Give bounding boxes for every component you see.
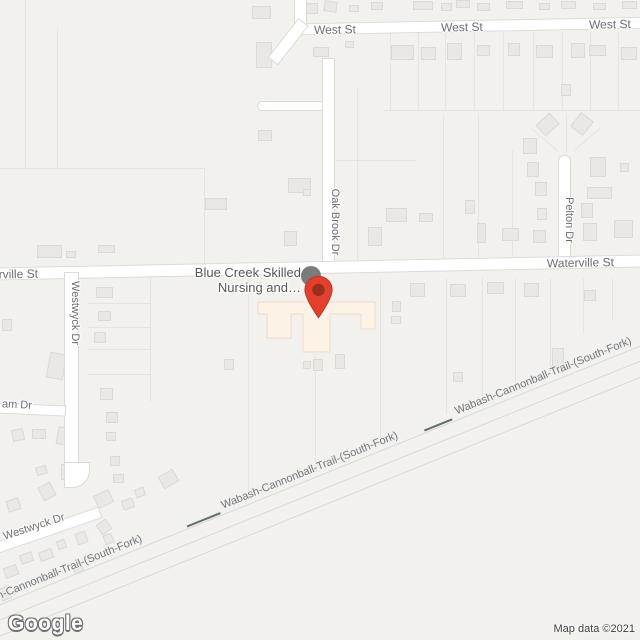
map-canvas[interactable]: West St West St West St Waterville St Wa…: [0, 0, 640, 640]
parcel-line: [390, 32, 391, 110]
road-west-st: West St West St West St: [294, 17, 640, 36]
parcel-line: [383, 110, 640, 111]
building: [447, 43, 462, 60]
parcel-line: [474, 32, 475, 110]
street-label-oak-brook-dr: Oak Brook Dr: [329, 170, 341, 274]
parcel-line: [482, 278, 483, 400]
building: [583, 223, 597, 241]
place-label[interactable]: Blue Creek Skilled Nursing and…: [150, 265, 301, 295]
building: [621, 47, 637, 60]
building: [224, 359, 234, 370]
building: [391, 316, 401, 324]
building: [2, 319, 12, 331]
parcel-line: [443, 115, 444, 258]
building: [614, 220, 633, 238]
building: [421, 47, 436, 60]
building: [450, 284, 466, 297]
building: [391, 45, 414, 60]
parcel-line: [612, 278, 613, 320]
building: [533, 230, 546, 243]
building: [589, 45, 606, 56]
building: [3, 564, 20, 579]
building: [413, 1, 433, 10]
building: [158, 469, 180, 490]
building: [508, 43, 520, 56]
pin-inner-dot: [312, 284, 324, 296]
google-logo[interactable]: Google: [8, 612, 83, 636]
building: [477, 45, 490, 56]
building: [98, 245, 115, 253]
building: [419, 213, 433, 222]
building: [37, 245, 62, 258]
building: [502, 228, 519, 241]
place-label-line2: Nursing and…: [150, 280, 301, 295]
building: [570, 112, 594, 136]
parcel-line: [550, 278, 551, 372]
parcel-line: [248, 278, 249, 500]
building: [536, 45, 553, 58]
street-label-pelton-dr: Pelton Dr: [563, 168, 575, 272]
street-label-waterville-st-left: Waterville St: [0, 268, 38, 281]
building: [98, 311, 111, 321]
parcel-line: [445, 32, 446, 110]
parcel-line: [418, 32, 419, 110]
parcel-line: [25, 0, 26, 168]
building: [537, 208, 547, 220]
building: [11, 428, 25, 442]
building: [93, 489, 114, 509]
trail-line-segment: [187, 512, 221, 527]
building: [106, 412, 118, 423]
parcel-line: [503, 32, 504, 110]
street-label-am-dr: am Dr: [2, 398, 33, 412]
building: [535, 113, 559, 137]
building: [121, 497, 136, 511]
building: [313, 359, 323, 371]
parcel-line: [583, 278, 584, 332]
building: [386, 208, 407, 222]
parcel-line: [590, 32, 591, 110]
road-westwyck-dr-curve: [64, 462, 90, 488]
building: [96, 287, 113, 298]
street-label-westwyck-dr-vertical: Westwyck Dr: [69, 261, 81, 365]
building: [506, 1, 523, 9]
parcel-line: [336, 160, 416, 161]
building: [539, 3, 550, 10]
building: [477, 3, 490, 11]
building: [581, 203, 593, 218]
building: [584, 290, 596, 301]
parcel-line: [57, 28, 58, 168]
building: [571, 43, 585, 58]
parcel-line: [566, 115, 567, 153]
parcel-line: [446, 278, 447, 414]
building: [465, 200, 475, 214]
road-oak-brook-dr-diagonal: [268, 18, 309, 65]
building: [313, 47, 329, 57]
building: [368, 227, 382, 246]
building: [205, 198, 227, 210]
trail-line-segment: [424, 418, 453, 431]
map-pin-icon[interactable]: [303, 275, 334, 319]
place-label-line1: Blue Creek Skilled: [150, 265, 301, 280]
building: [35, 465, 48, 477]
building: [100, 388, 113, 400]
map-attribution: Map data ©2021: [554, 623, 636, 635]
building: [453, 372, 463, 382]
street-label-west-st-3: West St: [589, 18, 631, 31]
building: [56, 539, 68, 551]
building: [303, 189, 311, 196]
street-label-west-st-1: West St: [314, 23, 356, 36]
building: [523, 138, 537, 154]
building: [561, 84, 571, 96]
building: [106, 432, 116, 441]
parcel-line: [533, 32, 534, 110]
building: [477, 223, 486, 243]
parcel-line: [512, 150, 513, 258]
building: [590, 157, 606, 177]
parcel-line: [618, 32, 619, 110]
building: [456, 0, 470, 8]
building: [32, 429, 46, 439]
building: [303, 361, 311, 369]
building: [349, 5, 359, 12]
building: [345, 41, 354, 48]
building: [392, 301, 401, 312]
building: [593, 3, 606, 10]
building: [323, 0, 337, 13]
building: [5, 497, 21, 512]
building: [535, 182, 547, 196]
parcel-line: [88, 303, 150, 304]
building: [561, 1, 576, 9]
trail-label-3: Wabash-Cannonball-Trail-(South-Fork): [453, 335, 633, 417]
parcel-line: [88, 374, 150, 375]
parcel-line: [204, 168, 205, 264]
parcel-line: [0, 168, 205, 169]
building: [527, 162, 539, 177]
street-label-west-st-2: West St: [441, 21, 483, 34]
building: [524, 283, 539, 297]
parcel-line: [562, 32, 563, 110]
building: [371, 2, 383, 10]
building: [38, 548, 55, 562]
building: [19, 551, 35, 565]
parcel-line: [88, 349, 150, 350]
building: [587, 187, 612, 199]
building: [441, 3, 452, 11]
building: [258, 130, 272, 141]
building: [620, 163, 629, 172]
building: [284, 231, 297, 246]
building: [74, 530, 88, 545]
street-label-waterville-st-right: Waterville St: [547, 256, 614, 269]
building: [487, 282, 504, 294]
building: [134, 487, 146, 499]
building: [66, 251, 76, 258]
building: [110, 456, 120, 466]
road-cul-de-sac-stub: [257, 101, 323, 111]
parcel-line: [515, 278, 516, 386]
trail-label-2: Wabash-Cannonball-Trail-(South-Fork): [220, 429, 400, 511]
building: [410, 283, 425, 297]
parcel-line: [88, 327, 150, 328]
building: [252, 6, 271, 19]
parcel-line: [357, 88, 358, 260]
building: [113, 474, 124, 483]
building: [622, 1, 637, 9]
parcel-line: [315, 355, 316, 470]
pin-body: [305, 276, 332, 317]
building: [37, 482, 56, 502]
building: [94, 332, 106, 343]
